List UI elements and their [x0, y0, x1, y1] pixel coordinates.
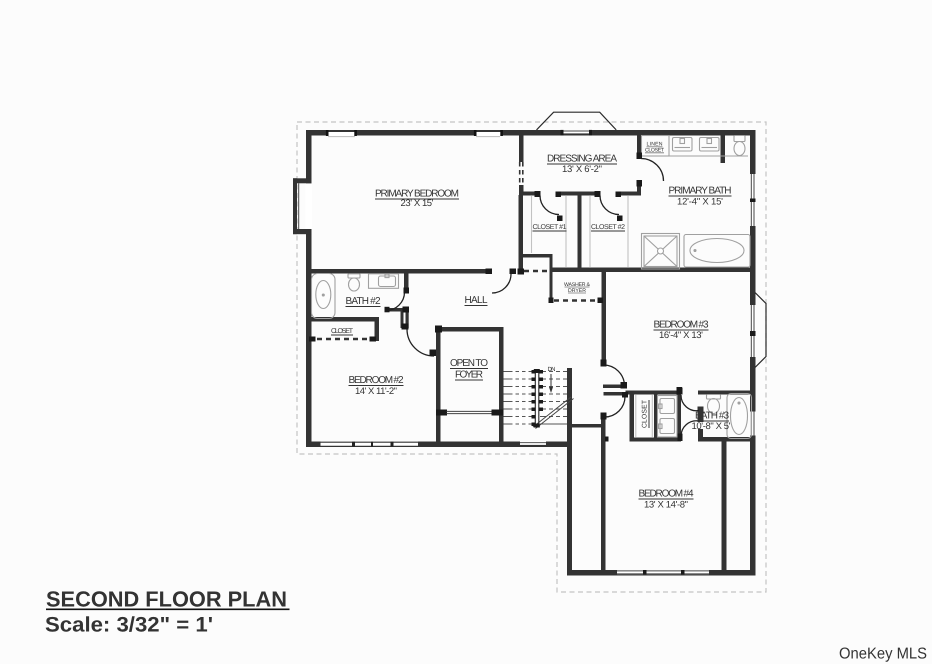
svg-text:OPEN TO: OPEN TO — [450, 358, 488, 369]
svg-text:BATH #2: BATH #2 — [346, 296, 381, 307]
svg-text:23' X 15': 23' X 15' — [401, 198, 434, 209]
svg-text:12'-4" X 15': 12'-4" X 15' — [677, 197, 723, 208]
svg-text:CLOSET: CLOSET — [642, 400, 649, 428]
svg-text:BEDROOM #3: BEDROOM #3 — [654, 320, 709, 331]
svg-text:13' X 14'-8": 13' X 14'-8" — [644, 500, 688, 511]
svg-text:PRIMARY BATH: PRIMARY BATH — [669, 186, 732, 197]
svg-text:CLOSET #2: CLOSET #2 — [591, 224, 625, 231]
svg-text:Scale: 3/32" = 1': Scale: 3/32" = 1' — [45, 614, 213, 637]
svg-text:DRESSING AREA: DRESSING AREA — [547, 154, 617, 165]
svg-text:13' X 6'-2": 13' X 6'-2" — [562, 164, 602, 175]
svg-text:16'-4" X 13': 16'-4" X 13' — [659, 330, 703, 341]
svg-text:10'-8" X 5': 10'-8" X 5' — [692, 421, 731, 432]
svg-text:DN: DN — [548, 366, 556, 373]
svg-text:14' X 11'-2": 14' X 11'-2" — [355, 386, 397, 397]
svg-text:HALL: HALL — [465, 295, 488, 306]
svg-text:BATH #3: BATH #3 — [695, 411, 729, 422]
svg-text:FOYER: FOYER — [455, 370, 483, 381]
svg-text:CLOSET: CLOSET — [331, 328, 354, 335]
svg-text:BEDROOM #4: BEDROOM #4 — [639, 489, 694, 500]
svg-text:CLOSET #1: CLOSET #1 — [533, 224, 567, 231]
svg-text:OneKey MLS: OneKey MLS — [839, 646, 927, 663]
svg-text:BEDROOM #2: BEDROOM #2 — [349, 375, 404, 386]
svg-text:SECOND FLOOR PLAN: SECOND FLOOR PLAN — [46, 587, 287, 612]
